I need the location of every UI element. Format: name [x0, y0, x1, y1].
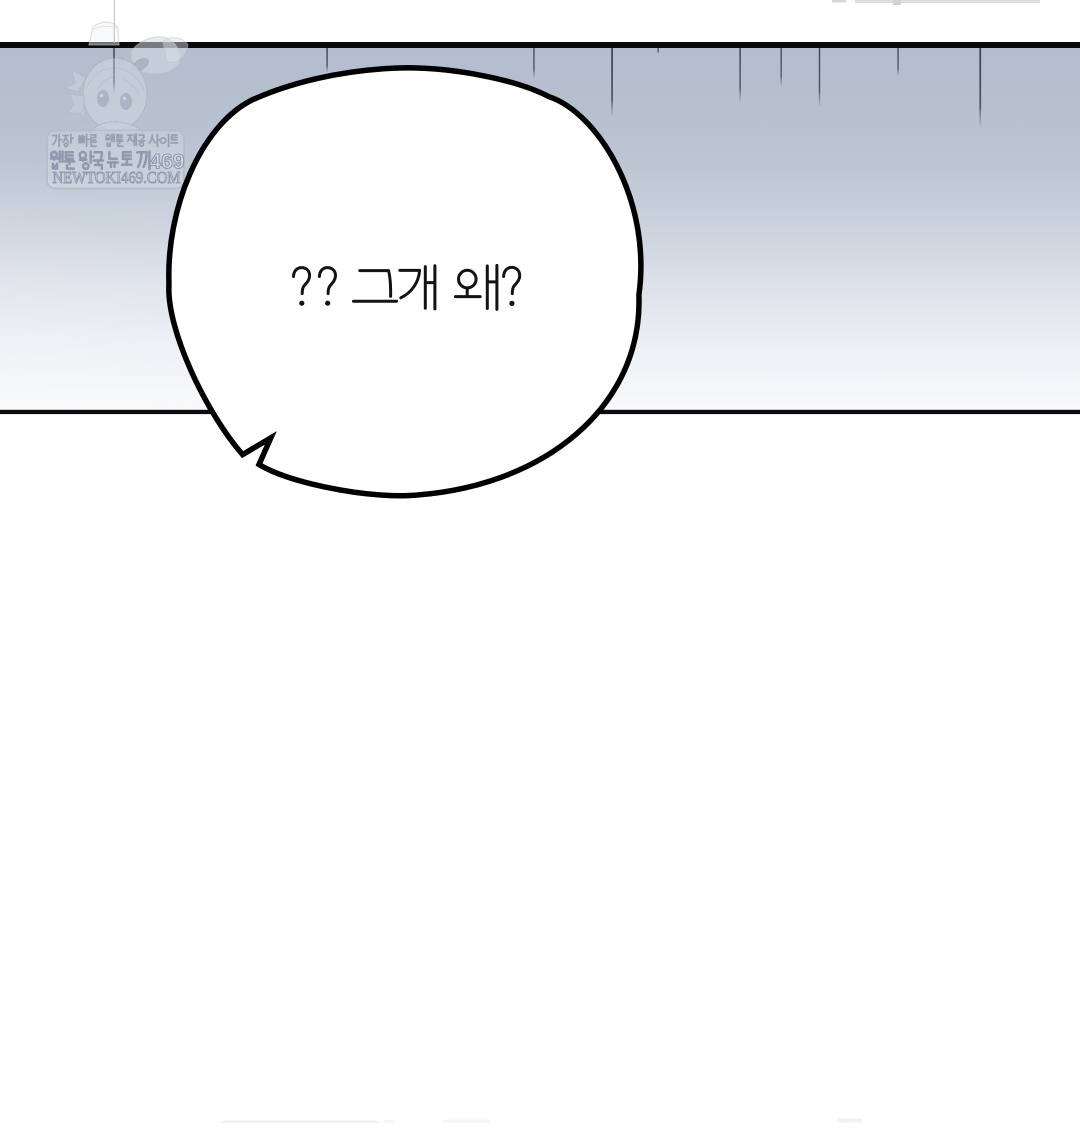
svg-text:NEWTOKI469.COM: NEWTOKI469.COM — [53, 168, 181, 187]
